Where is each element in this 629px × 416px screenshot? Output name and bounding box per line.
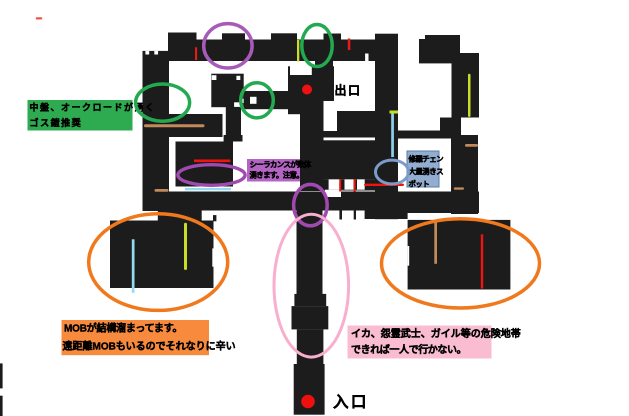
svg-text:ゴス鎧推奨: ゴス鎧推奨 xyxy=(30,117,83,128)
svg-text:入口: 入口 xyxy=(333,393,369,411)
svg-text:遠距離MOBもいるのでそれなりに辛い: 遠距離MOBもいるのでそれなりに辛い xyxy=(63,340,236,353)
svg-text:イカ、怨霊武士、ガイル等の危険地帯: イカ、怨霊武士、ガイル等の危険地帯 xyxy=(351,327,521,340)
svg-text:ポット: ポット xyxy=(409,179,430,189)
svg-text:修羅チェン: 修羅チェン xyxy=(408,154,445,164)
svg-text:できれば一人で行かない。: できれば一人で行かない。 xyxy=(351,343,466,356)
svg-text:大量湧きス: 大量湧きス xyxy=(409,166,444,176)
svg-text:出口: 出口 xyxy=(335,83,362,98)
svg-text:湧きます。注意。: 湧きます。注意。 xyxy=(250,170,304,180)
svg-text:MOBが結構溜まってます。: MOBが結構溜まってます。 xyxy=(64,322,182,335)
svg-text:シーラカンスが数体: シーラカンスが数体 xyxy=(250,159,312,169)
